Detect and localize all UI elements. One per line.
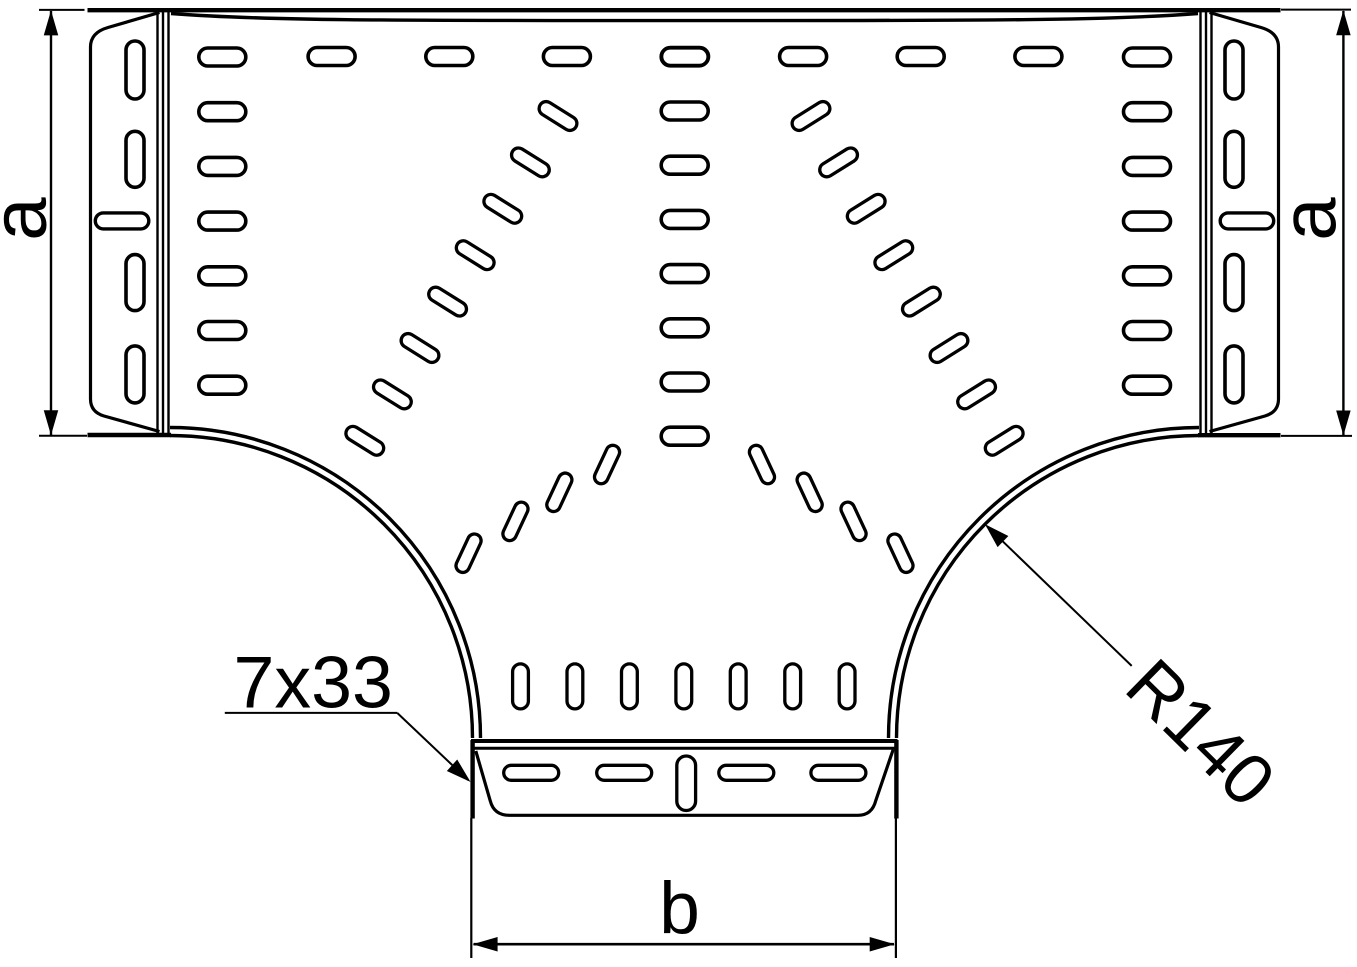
svg-text:b: b — [659, 868, 700, 949]
svg-text:7x33: 7x33 — [234, 641, 393, 724]
svg-text:a: a — [1264, 197, 1352, 241]
svg-text:a: a — [0, 197, 63, 241]
